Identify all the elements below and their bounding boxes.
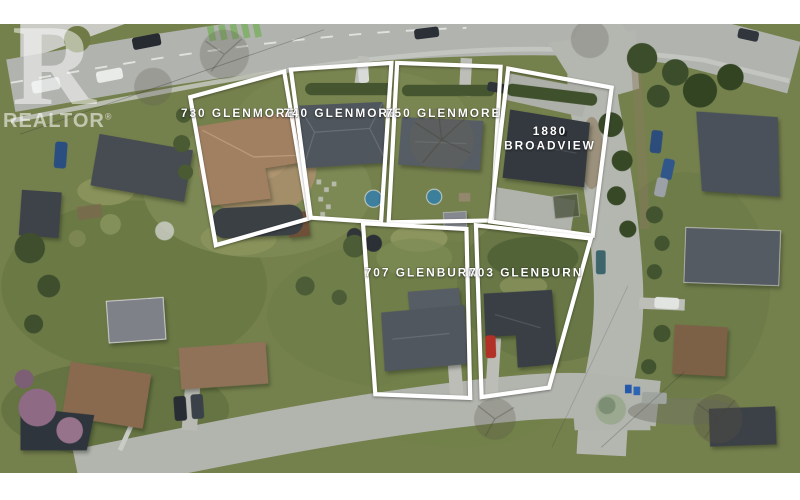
house-roof-707 xyxy=(381,305,468,371)
car xyxy=(654,297,679,310)
play-structure xyxy=(459,193,470,202)
hedge xyxy=(402,85,495,96)
bin xyxy=(625,385,632,394)
house-roof xyxy=(696,111,780,196)
house-roof xyxy=(672,325,728,377)
trampoline xyxy=(155,221,174,240)
parcel-label-703-glenburn: 703 GLENBURN xyxy=(469,266,583,280)
pool xyxy=(365,190,382,207)
house-roof xyxy=(178,342,268,390)
aerial-photo: 730 GLENMORE740 GLENMORE750 GLENMORE1880… xyxy=(0,24,800,473)
trailer xyxy=(642,392,667,404)
parcel-label-707-glenburn: 707 GLENBURN xyxy=(365,266,479,280)
parcel-label-740-glenmore: 740 GLENMORE xyxy=(283,106,399,120)
garden-frame xyxy=(553,194,580,219)
trampoline xyxy=(365,235,382,252)
letterbox-top xyxy=(0,0,800,24)
house-roof xyxy=(106,297,166,343)
car xyxy=(173,396,187,421)
aerial-scene: 730 GLENMORE740 GLENMORE750 GLENMORE1880… xyxy=(0,24,800,473)
house-roof xyxy=(684,227,781,285)
parcel-label-730-glenmore: 730 GLENMORE xyxy=(181,106,297,120)
car-red xyxy=(485,335,496,358)
parcel-label-750-glenmore: 750 GLENMORE xyxy=(386,106,502,120)
hedge xyxy=(305,83,392,95)
house-roof xyxy=(19,190,62,238)
car xyxy=(190,394,204,419)
parcel-label-1880-broadview: 1880 xyxy=(533,124,567,138)
listing-image: 730 GLENMORE740 GLENMORE750 GLENMORE1880… xyxy=(0,0,800,500)
truck xyxy=(54,141,68,168)
letterbox-bottom xyxy=(0,473,800,500)
parcel-label-1880-broadview: BROADVIEW xyxy=(504,138,596,152)
car xyxy=(596,250,606,275)
pool xyxy=(427,189,442,204)
bin xyxy=(634,387,641,396)
car xyxy=(649,130,663,154)
